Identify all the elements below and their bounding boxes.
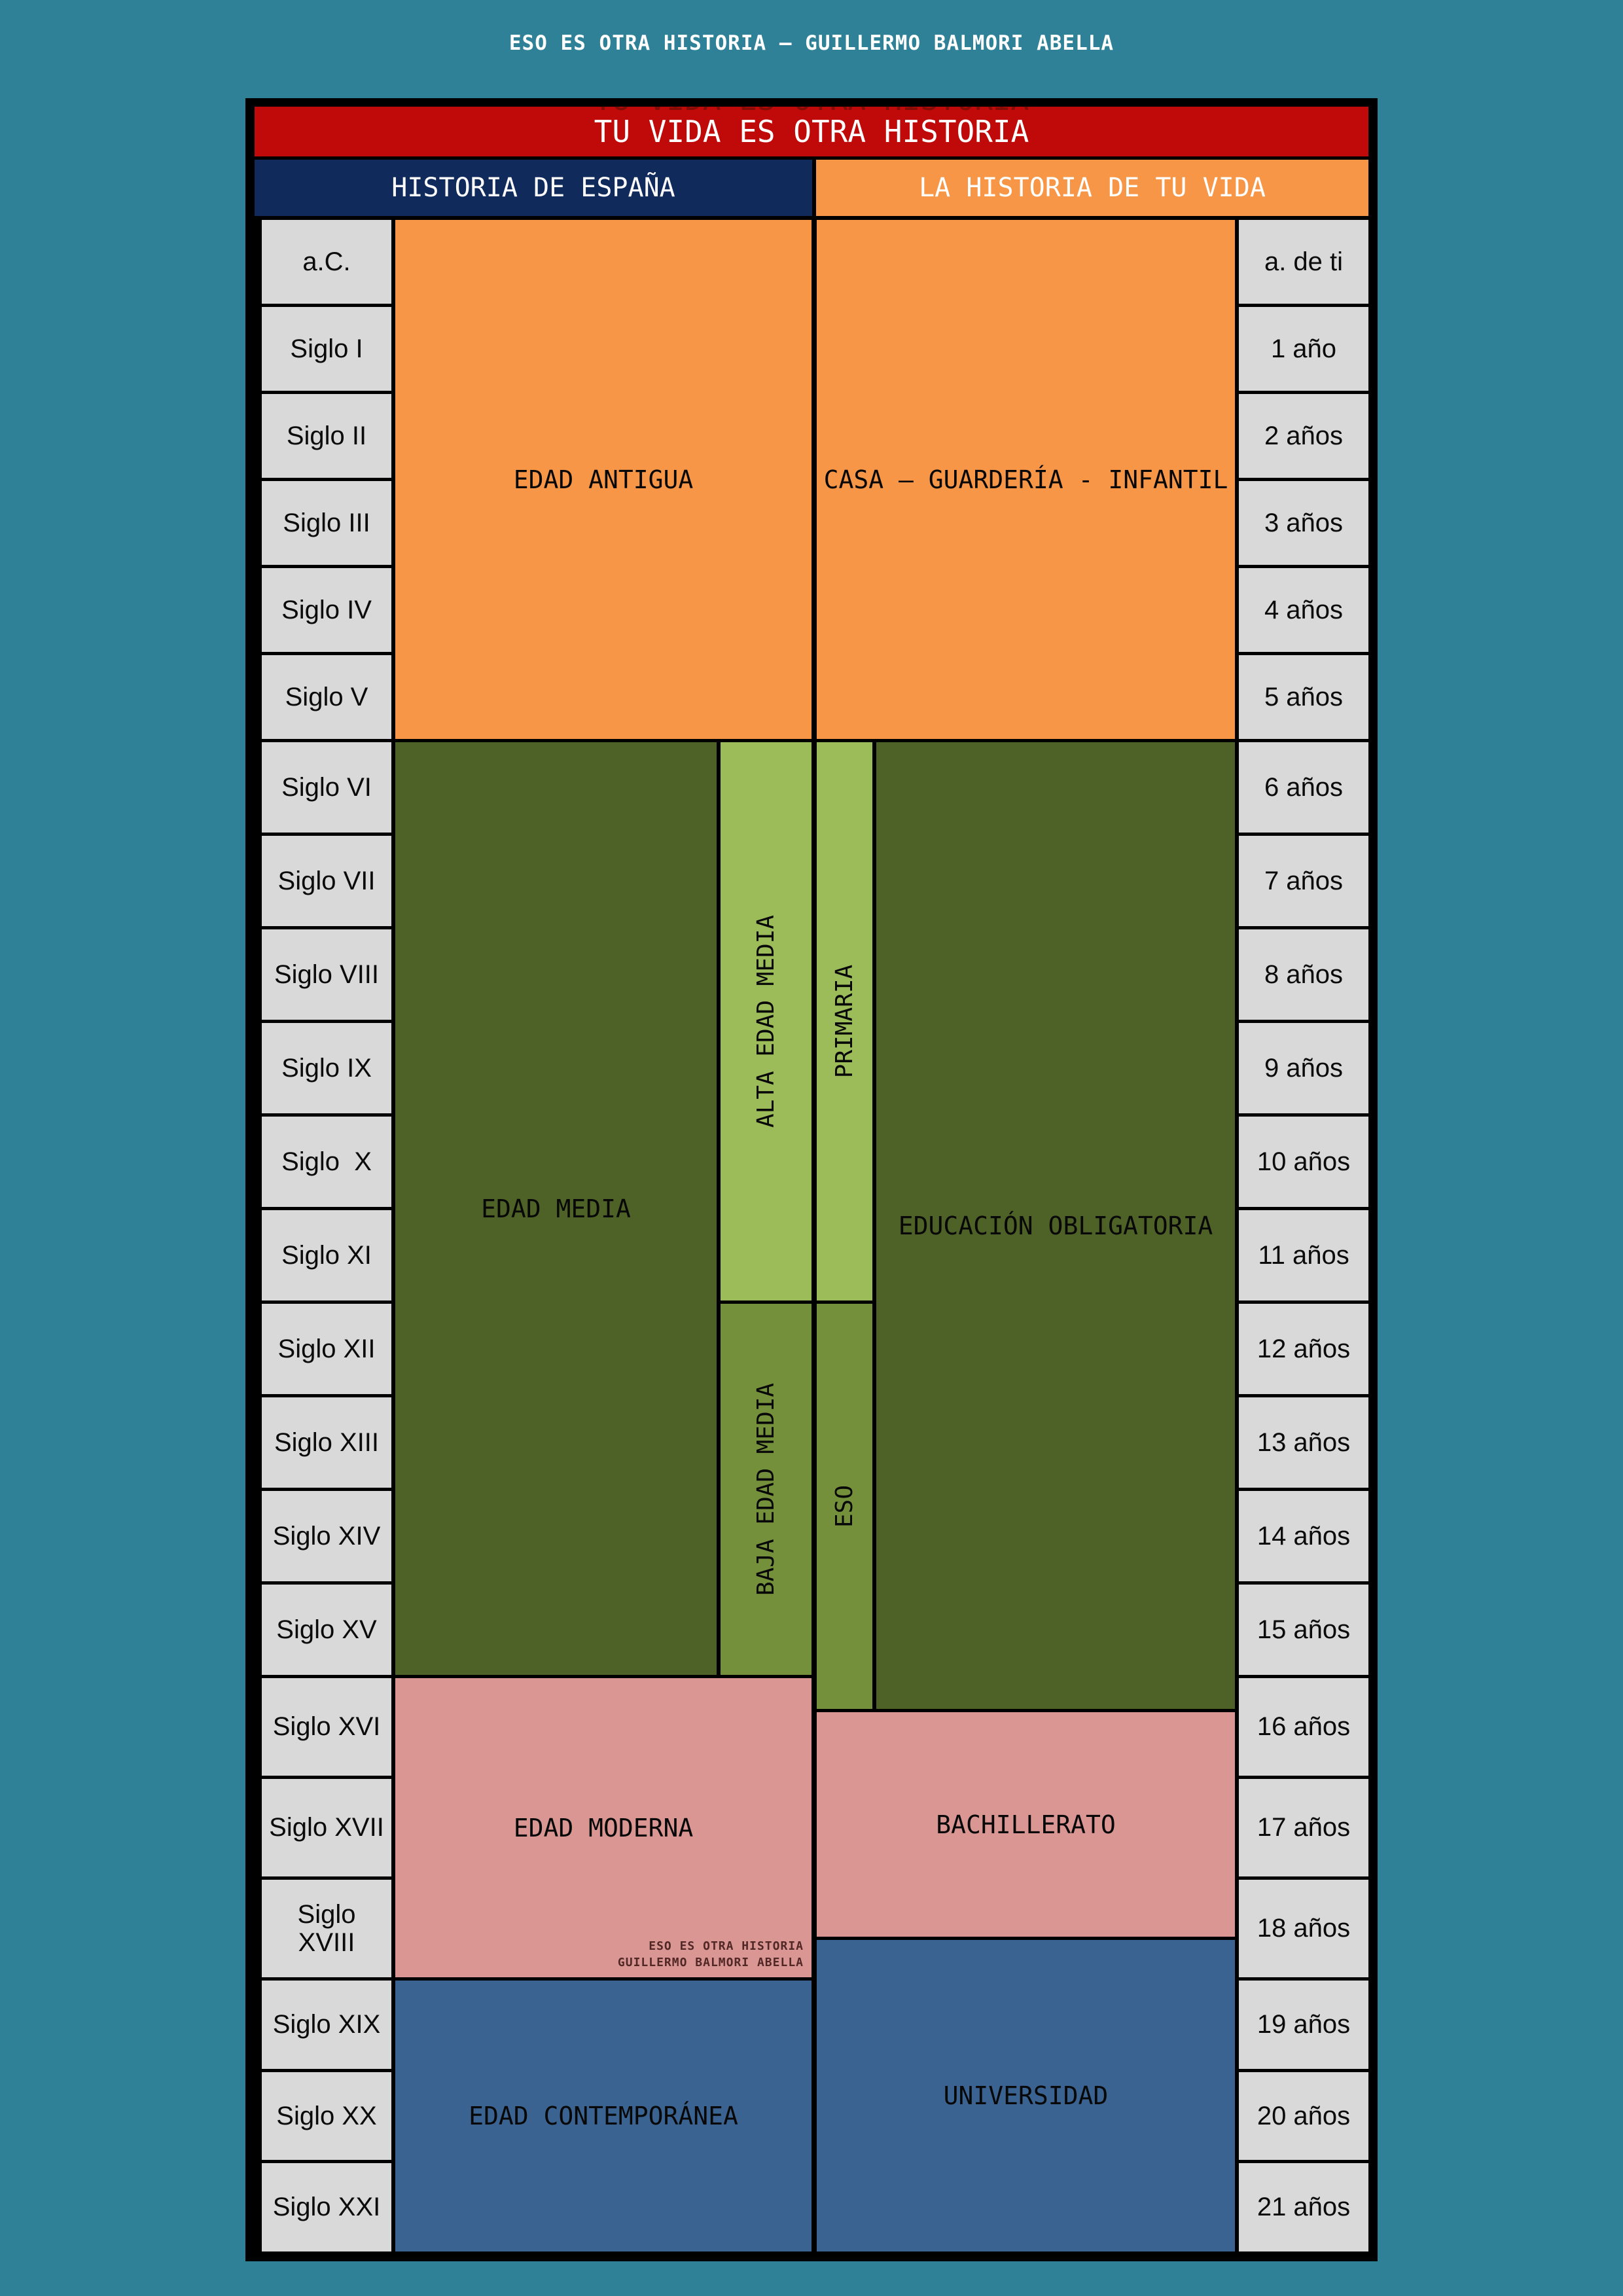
century-cell: Siglo I — [262, 307, 391, 394]
banner: TU VIDA ES OTRA HISTORIA TU VIDA ES OTRA… — [255, 107, 1368, 156]
period-label: EDAD CONTEMPORÁNEA — [469, 2102, 738, 2130]
age-cell: 6 años — [1239, 742, 1368, 836]
century-cell: Siglo VIII — [262, 929, 391, 1023]
age-cell: 15 años — [1239, 1585, 1368, 1678]
age-cell: 3 años — [1239, 481, 1368, 568]
age-cell: 4 años — [1239, 568, 1368, 655]
period-label: ALTA EDAD MEDIA — [753, 915, 779, 1128]
century-cell: a.C. — [262, 220, 391, 307]
century-cell: Siglo II — [262, 394, 391, 481]
header-spain: HISTORIA DE ESPAÑA — [255, 160, 812, 216]
watermark-line2: GUILLERMO BALMORI ABELLA — [618, 1955, 804, 1971]
age-cell: a. de ti — [1239, 220, 1368, 307]
age-cell: 9 años — [1239, 1023, 1368, 1117]
age-cell: 8 años — [1239, 929, 1368, 1023]
page-credit-title: ESO ES OTRA HISTORIA – GUILLERMO BALMORI… — [0, 31, 1623, 55]
period-label: EDUCACIÓN OBLIGATORIA — [899, 1211, 1213, 1240]
century-cell: Siglo X — [262, 1117, 391, 1210]
watermark-line1: ESO ES OTRA HISTORIA — [618, 1939, 804, 1954]
century-cell: Siglo XV — [262, 1585, 391, 1678]
age-cell: 19 años — [1239, 1981, 1368, 2072]
period-block-universidad: UNIVERSIDAD — [817, 1940, 1235, 2251]
age-cell: 12 años — [1239, 1304, 1368, 1397]
age-cell: 18 años — [1239, 1880, 1368, 1981]
century-cell: Siglo XVI — [262, 1678, 391, 1779]
period-block-edad-moderna: EDAD MODERNA ESO ES OTRA HISTORIA GUILLE… — [395, 1678, 811, 1977]
century-cell: Siglo IX — [262, 1023, 391, 1117]
period-label: ESO — [831, 1485, 858, 1528]
period-block-casa-guarderia-infantil: CASA – GUARDERÍA - INFANTIL — [817, 220, 1235, 739]
century-cell: Siglo V — [262, 655, 391, 742]
age-column: a. de ti1 año2 años3 años4 años5 años6 a… — [1239, 220, 1368, 2251]
age-cell: 17 años — [1239, 1779, 1368, 1880]
century-cell: Siglo XIX — [262, 1981, 391, 2072]
age-cell: 14 años — [1239, 1491, 1368, 1585]
century-cell: Siglo VII — [262, 836, 391, 929]
age-cell: 10 años — [1239, 1117, 1368, 1210]
banner-title: TU VIDA ES OTRA HISTORIA — [594, 114, 1029, 149]
period-label: EDAD ANTIGUA — [514, 465, 694, 494]
century-column: a.C.Siglo ISiglo IISiglo IIISiglo IVSigl… — [262, 220, 391, 2251]
century-cell: Siglo III — [262, 481, 391, 568]
age-cell: 5 años — [1239, 655, 1368, 742]
century-cell: Siglo VI — [262, 742, 391, 836]
century-cell: Siglo XIII — [262, 1397, 391, 1491]
century-cell: Siglo XVII — [262, 1779, 391, 1880]
period-block-bachillerato: BACHILLERATO — [817, 1712, 1235, 1937]
century-cell: Siglo XIV — [262, 1491, 391, 1585]
period-block-alta-edad-media: ALTA EDAD MEDIA — [721, 742, 811, 1300]
age-cell: 7 años — [1239, 836, 1368, 929]
century-cell: Siglo XVIII — [262, 1880, 391, 1981]
watermark-credit: ESO ES OTRA HISTORIA GUILLERMO BALMORI A… — [618, 1939, 804, 1971]
age-cell: 21 años — [1239, 2163, 1368, 2251]
century-cell: Siglo XXI — [262, 2163, 391, 2251]
century-cell: Siglo IV — [262, 568, 391, 655]
age-cell: 11 años — [1239, 1210, 1368, 1304]
period-block-educacion-obligatoria: EDUCACIÓN OBLIGATORIA — [876, 742, 1235, 1709]
age-cell: 1 año — [1239, 307, 1368, 394]
century-cell: Siglo XII — [262, 1304, 391, 1397]
age-cell: 2 años — [1239, 394, 1368, 481]
period-label: BACHILLERATO — [936, 1810, 1116, 1839]
header-life: LA HISTORIA DE TU VIDA — [816, 160, 1368, 216]
period-block-baja-edad-media: BAJA EDAD MEDIA — [721, 1304, 811, 1675]
period-block-edad-media: EDAD MEDIA — [395, 742, 717, 1675]
period-block-edad-contemporanea: EDAD CONTEMPORÁNEA — [395, 1981, 811, 2251]
period-label: EDAD MODERNA — [514, 1814, 694, 1842]
period-label: EDAD MEDIA — [481, 1194, 631, 1223]
age-cell: 16 años — [1239, 1678, 1368, 1779]
period-label: BAJA EDAD MEDIA — [753, 1383, 779, 1596]
period-block-edad-antigua: EDAD ANTIGUA — [395, 220, 811, 739]
age-cell: 13 años — [1239, 1397, 1368, 1491]
age-cell: 20 años — [1239, 2072, 1368, 2163]
period-label: PRIMARIA — [831, 965, 858, 1078]
century-cell: Siglo XI — [262, 1210, 391, 1304]
period-label: CASA – GUARDERÍA - INFANTIL — [824, 465, 1228, 494]
period-label: UNIVERSIDAD — [944, 2081, 1109, 2110]
period-block-eso: ESO — [817, 1304, 872, 1709]
century-cell: Siglo XX — [262, 2072, 391, 2163]
period-block-primaria: PRIMARIA — [817, 742, 872, 1300]
